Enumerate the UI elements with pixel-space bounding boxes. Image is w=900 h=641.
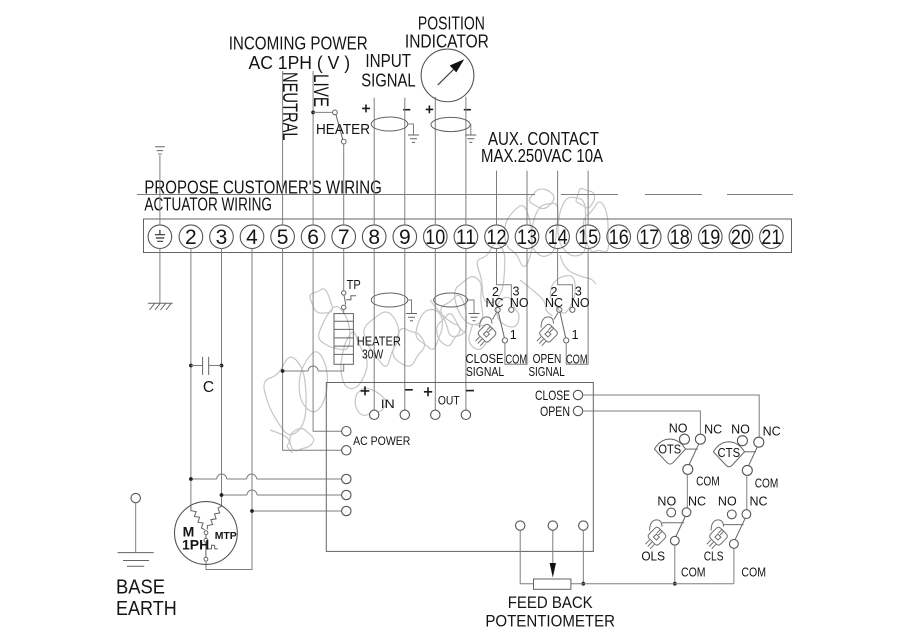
svg-text:21: 21 [761, 226, 781, 249]
svg-text:NC: NC [763, 425, 781, 439]
svg-text:OLS: OLS [641, 549, 665, 563]
svg-text:AC 1PH ( V ): AC 1PH ( V ) [249, 53, 351, 73]
svg-text:15: 15 [578, 226, 598, 249]
svg-text:OUT: OUT [438, 393, 460, 407]
svg-text:COM: COM [566, 352, 588, 366]
svg-text:NO: NO [571, 296, 590, 310]
svg-text:7: 7 [338, 226, 350, 249]
svg-text:3: 3 [216, 226, 228, 249]
svg-text:AC POWER: AC POWER [353, 434, 410, 448]
svg-text:2: 2 [185, 226, 197, 249]
svg-text:NO: NO [731, 423, 750, 437]
svg-text:NC: NC [485, 296, 503, 310]
svg-text:5: 5 [277, 226, 289, 249]
svg-text:4: 4 [246, 226, 258, 249]
svg-text:MTP: MTP [215, 530, 237, 542]
svg-text:BASE: BASE [116, 575, 165, 598]
svg-text:9: 9 [399, 226, 411, 249]
svg-text:16: 16 [609, 226, 629, 249]
svg-text:CLOSE: CLOSE [535, 388, 570, 403]
svg-text:13: 13 [517, 226, 537, 249]
svg-text:NC: NC [545, 296, 563, 310]
svg-text:10: 10 [425, 226, 445, 249]
svg-text:20: 20 [731, 226, 751, 249]
svg-text:SIGNAL: SIGNAL [528, 365, 564, 379]
svg-text:TP: TP [347, 277, 361, 292]
svg-text:30W: 30W [362, 346, 384, 361]
svg-text:NO: NO [718, 494, 737, 508]
svg-text:FEED BACK: FEED BACK [508, 593, 594, 612]
svg-text:EARTH: EARTH [116, 597, 177, 620]
svg-text:POTENTIOMETER: POTENTIOMETER [485, 612, 615, 631]
svg-text:18: 18 [670, 226, 690, 249]
svg-text:1: 1 [510, 328, 517, 342]
svg-text:8: 8 [368, 226, 380, 249]
svg-text:NO: NO [510, 296, 529, 310]
svg-text:IN: IN [381, 397, 395, 411]
svg-text:LIVE: LIVE [309, 74, 332, 107]
svg-text:NO: NO [657, 494, 676, 508]
svg-text:ACTUATOR WIRING: ACTUATOR WIRING [144, 195, 272, 215]
svg-text:HEATER: HEATER [316, 121, 370, 138]
svg-text:NEUTRAL: NEUTRAL [278, 72, 301, 141]
svg-text:17: 17 [639, 226, 659, 249]
svg-text:19: 19 [700, 226, 720, 249]
svg-text:COM: COM [741, 565, 766, 579]
svg-text:11: 11 [456, 226, 476, 249]
svg-text:MAX.250VAC 10A: MAX.250VAC 10A [481, 146, 603, 166]
svg-text:COM: COM [681, 565, 706, 579]
svg-text:1: 1 [572, 328, 579, 342]
svg-text:NC: NC [704, 423, 722, 437]
svg-text:NC: NC [749, 494, 767, 508]
svg-text:CLS: CLS [704, 549, 724, 563]
svg-text:NO: NO [669, 422, 688, 436]
svg-text:INDICATOR: INDICATOR [405, 31, 489, 51]
svg-text:COM: COM [696, 475, 720, 489]
svg-text:C: C [203, 379, 214, 396]
svg-text:COM: COM [755, 476, 779, 490]
svg-text:INCOMING POWER: INCOMING POWER [229, 33, 368, 53]
svg-text:SIGNAL: SIGNAL [361, 71, 415, 91]
svg-text:12: 12 [487, 226, 507, 249]
svg-text:OTS: OTS [658, 443, 681, 457]
svg-text:14: 14 [548, 226, 568, 249]
svg-text:COM: COM [506, 352, 528, 366]
svg-text:CTS: CTS [718, 446, 741, 460]
svg-text:1PH: 1PH [182, 537, 209, 553]
svg-text:SIGNAL: SIGNAL [466, 365, 504, 379]
svg-text:INPUT: INPUT [365, 51, 411, 71]
svg-text:6: 6 [307, 226, 319, 249]
svg-text:OPEN: OPEN [540, 404, 570, 419]
svg-text:NC: NC [688, 494, 706, 508]
